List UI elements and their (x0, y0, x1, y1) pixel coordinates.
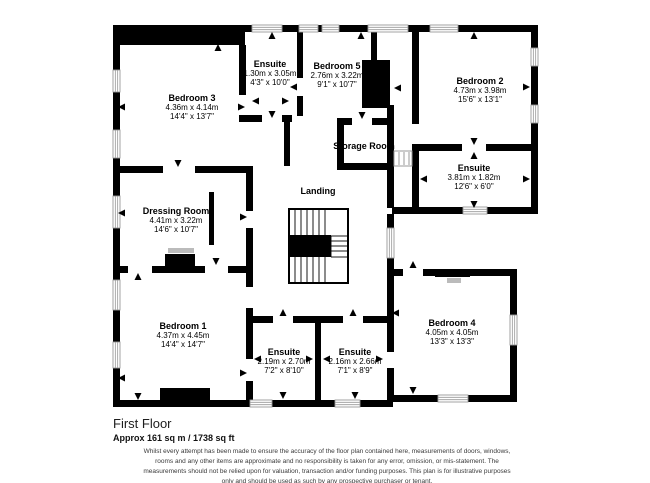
room-dims-imperial: 9'1" x 10'7" (311, 80, 364, 89)
room-name: Dressing Room (143, 206, 210, 216)
room-label-bedroom-2: Bedroom 2 4.73m x 3.98m 15'6" x 13'1" (454, 76, 507, 104)
room-label-bedroom-3: Bedroom 3 4.36m x 4.14m 14'4" x 13'7" (166, 93, 219, 121)
room-dims-metric: 4.37m x 4.45m (157, 331, 210, 340)
room-name: Bedroom 1 (157, 321, 210, 331)
room-label-ensuite-bedroom-1: Ensuite 2.19m x 2.70m 7'2" x 8'10" (258, 347, 311, 375)
floor-plan-page: Bedroom 3 4.36m x 4.14m 14'4" x 13'7" En… (0, 0, 650, 483)
room-label-ensuite-bedroom-3: Ensuite 1.30m x 3.05m 4'3" x 10'0" (244, 59, 297, 87)
room-dims-metric: 4.41m x 3.22m (143, 216, 210, 225)
room-label-landing: Landing (301, 186, 336, 196)
room-name: Ensuite (258, 347, 311, 357)
room-dims-metric: 4.05m x 4.05m (426, 328, 479, 337)
room-dims-metric: 2.16m x 2.66m (329, 357, 382, 366)
disclaimer-text: Whilst every attempt has been made to en… (140, 447, 514, 483)
room-dims-imperial: 14'6" x 10'7" (143, 225, 210, 234)
room-dims-imperial: 14'4" x 14'7" (157, 340, 210, 349)
room-dims-imperial: 4'3" x 10'0" (244, 78, 297, 87)
room-dims-imperial: 14'4" x 13'7" (166, 112, 219, 121)
room-dims-metric: 2.19m x 2.70m (258, 357, 311, 366)
room-name: Ensuite (329, 347, 382, 357)
small-staircase (394, 151, 412, 166)
room-name: Bedroom 4 (426, 318, 479, 328)
room-name: Bedroom 5 (311, 61, 364, 71)
room-label-bedroom-1: Bedroom 1 4.37m x 4.45m 14'4" x 14'7" (157, 321, 210, 349)
room-dims-metric: 4.73m x 3.98m (454, 86, 507, 95)
room-label-bedroom-5: Bedroom 5 2.76m x 3.22m 9'1" x 10'7" (311, 61, 364, 89)
room-dims-metric: 3.81m x 1.82m (448, 173, 501, 182)
room-dims-metric: 4.36m x 4.14m (166, 103, 219, 112)
room-name: Bedroom 3 (166, 93, 219, 103)
room-name: Bedroom 2 (454, 76, 507, 86)
room-dims-imperial: 7'2" x 8'10" (258, 366, 311, 375)
room-dims-metric: 2.76m x 3.22m (311, 71, 364, 80)
room-name: Landing (301, 186, 336, 196)
room-label-ensuite-middle: Ensuite 2.16m x 2.66m 7'1" x 8'9" (329, 347, 382, 375)
room-label-dressing-room: Dressing Room 4.41m x 3.22m 14'6" x 10'7… (143, 206, 210, 234)
room-label-bedroom-4: Bedroom 4 4.05m x 4.05m 13'3" x 13'3" (426, 318, 479, 346)
room-dims-imperial: 12'6" x 6'0" (448, 182, 501, 191)
room-name: Storage Room (333, 141, 395, 151)
room-name: Ensuite (244, 59, 297, 69)
room-dims-metric: 1.30m x 3.05m (244, 69, 297, 78)
floor-area-text: Approx 161 sq m / 1738 sq ft (113, 433, 235, 443)
room-dims-imperial: 7'1" x 8'9" (329, 366, 382, 375)
room-dims-imperial: 15'6" x 13'1" (454, 95, 507, 104)
room-label-storage-room: Storage Room (333, 141, 395, 151)
floor-title: First Floor (113, 416, 172, 431)
room-name: Ensuite (448, 163, 501, 173)
staircase (289, 209, 348, 283)
room-dims-imperial: 13'3" x 13'3" (426, 337, 479, 346)
room-label-ensuite-bedroom-2: Ensuite 3.81m x 1.82m 12'6" x 6'0" (448, 163, 501, 191)
